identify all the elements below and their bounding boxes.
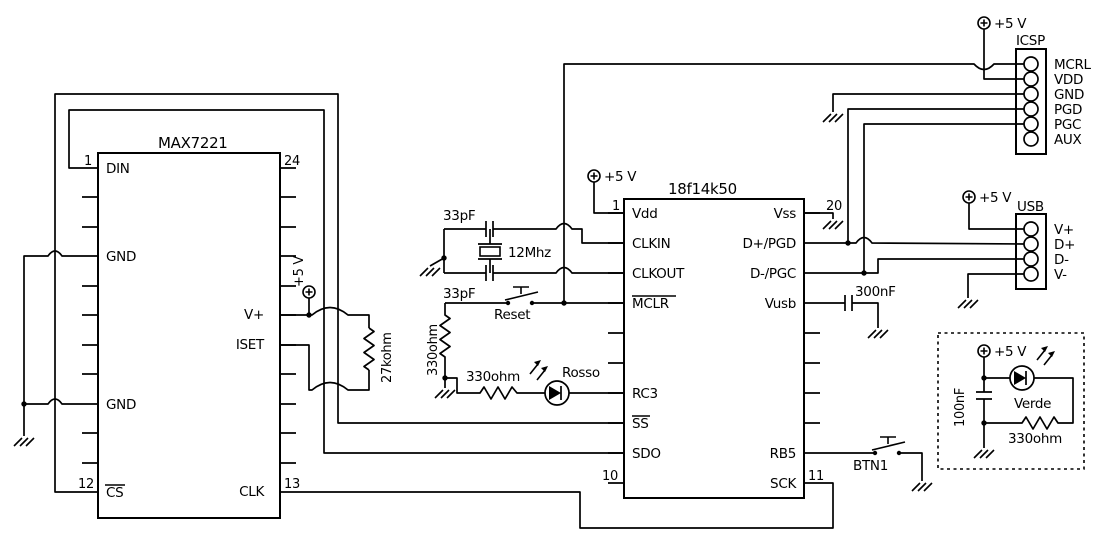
max-ground-icon	[14, 438, 34, 446]
icsp-pin-gnd: GND	[1054, 87, 1084, 103]
pic-pin-ss: SS	[632, 416, 649, 432]
schematic-canvas: MAX7221 1 24 12 13 DIN GND GND CS V+ ISE…	[0, 0, 1115, 546]
pic-5v-icon	[588, 170, 600, 182]
vusb-ground-icon	[868, 330, 888, 338]
usb-pin-vminus: V-	[1054, 267, 1067, 283]
vss-ground-icon	[823, 221, 843, 229]
pic-5v-label: +5 V	[604, 169, 637, 185]
pic-pin-vusb: Vusb	[765, 296, 796, 312]
pic-pin-sck: SCK	[770, 476, 797, 492]
verde-led-arrowhead-2	[1041, 346, 1048, 352]
max7221-chip: MAX7221 1 24 12 13 DIN GND GND CS V+ ISE…	[78, 134, 300, 518]
cap-top-wire	[444, 221, 624, 243]
icsp-5v-icon	[978, 17, 990, 29]
crystal-leads	[478, 229, 502, 273]
cap-top-label: 33pF	[443, 208, 475, 224]
mclr-resistor-ground-icon	[435, 390, 455, 398]
usb-pin-vplus: V+	[1054, 222, 1074, 238]
verde-led-arrowhead-1	[1048, 351, 1055, 357]
max7221-pin-gnd-lower: GND	[106, 397, 136, 413]
pic-pin-dpgc: D-/PGC	[750, 266, 796, 282]
icsp-connector: ICSP MCRL VDD GND PGD PGC AUX	[823, 29, 1092, 273]
usb-ground-icon	[958, 300, 978, 308]
vusb-capacitor-label: 300nF	[855, 284, 896, 300]
crystal-label: 12Mhz	[508, 245, 551, 261]
wire-gnd-lower	[24, 399, 82, 404]
schematic-page: MAX7221 1 24 12 13 DIN GND GND CS V+ ISE…	[0, 0, 1115, 546]
reset-label: Reset	[494, 307, 530, 323]
max7221-left-pin-stubs	[82, 168, 98, 492]
verde-cap-wires	[976, 357, 1010, 448]
rosso-led-label: Rosso	[562, 365, 600, 381]
pic-pin-clkin: CLKIN	[632, 236, 670, 252]
reset-button-symbol	[505, 287, 538, 300]
max7221-pin-iset: ISET	[236, 337, 265, 353]
cap-bottom-wire	[444, 265, 624, 281]
wire-dminus-pgc	[820, 259, 1024, 273]
btn1-ground-icon	[912, 483, 932, 491]
verde-led-label: Verde	[1014, 396, 1051, 412]
pic-pin-vss: Vss	[774, 206, 797, 222]
pic-pin10-number: 10	[602, 469, 618, 484]
icsp-pin-pgc: PGC	[1054, 117, 1081, 133]
icsp-title: ICSP	[1016, 33, 1045, 49]
iset-resistor-label: 27kohm	[380, 332, 395, 383]
wire-din-sdo	[69, 110, 624, 453]
usb-5v-icon	[963, 191, 975, 203]
pic-left-pin-stubs	[608, 213, 624, 483]
max-5v-label: +5 V	[292, 256, 307, 287]
usb-connector: USB V+ D+ D- V-	[958, 199, 1075, 308]
icsp-5v-label: +5 V	[994, 16, 1027, 32]
max7221-pin-gnd-upper: GND	[106, 249, 136, 265]
verde-resistor-label: 330ohm	[1008, 431, 1062, 447]
max7221-pin24-number: 24	[284, 154, 300, 169]
power-flags: +5 V +5 V +5 V +5 V	[292, 16, 1027, 298]
btn1-button-symbol	[872, 437, 905, 450]
pic-pin20-number: 20	[826, 199, 842, 214]
max7221-right-pin-stubs	[280, 168, 296, 492]
icsp-pgd-wire	[848, 109, 1024, 243]
max7221-title: MAX7221	[158, 134, 228, 152]
verde-led-circuit: +5 V Verde 330ohm 100nF	[938, 333, 1084, 469]
max7221-pin-din: DIN	[106, 161, 130, 177]
pic-pin1-number: 1	[612, 199, 620, 214]
cap-bottom-label: 33pF	[443, 286, 475, 302]
verde-5v-label: +5 V	[994, 344, 1027, 360]
pic-pin-dpgd: D+/PGD	[743, 236, 796, 252]
usb-title: USB	[1017, 199, 1044, 215]
rosso-led-triangle	[549, 386, 561, 400]
wire-clk-sck	[296, 483, 833, 528]
rosso-resistor-label: 330ohm	[466, 369, 520, 385]
wire-gnd-upper	[24, 251, 82, 436]
rosso-led-cathode-wire	[561, 386, 624, 400]
verde-ground-icon	[974, 450, 994, 458]
crystal-body	[480, 247, 500, 256]
btn1-circuit: BTN1	[820, 437, 932, 491]
iset-resistor-zigzag	[364, 328, 374, 370]
vusb-capacitor-circuit: 300nF	[820, 284, 896, 338]
rosso-led-circuit: 330ohm Rosso	[445, 360, 624, 405]
pic-pin-vdd: Vdd	[632, 206, 657, 222]
usb-pin-dplus: D+	[1054, 237, 1075, 253]
pic18f14k50-chip: 18f14k50 1 20 10 11 Vdd CLKIN CLKOUT MCL…	[602, 180, 842, 498]
max7221-pin-cs: CS	[106, 485, 123, 501]
rosso-led-arrowhead-1	[541, 366, 548, 372]
crystal-ground-icon	[420, 268, 440, 276]
icsp-pin-aux: AUX	[1054, 132, 1082, 148]
max7221-pin-vplus: V+	[244, 307, 264, 323]
icsp-pin-vdd: VDD	[1054, 72, 1083, 88]
pic-pin11-number: 11	[808, 469, 824, 484]
mclr-resistor-label: 330ohm	[426, 324, 441, 376]
btn1-label: BTN1	[853, 458, 888, 474]
pic-title: 18f14k50	[668, 180, 737, 198]
verde-led-arrows	[1037, 350, 1052, 365]
pic-pin-clkout: CLKOUT	[632, 266, 685, 282]
max7221-pin1-number: 1	[84, 154, 92, 169]
verde-led-triangle	[1014, 371, 1026, 385]
usb-5v-label: +5 V	[979, 190, 1012, 206]
crystal-circuit: 33pF 33pF 12Mhz	[420, 208, 624, 302]
pic-pin-mclr: MCLR	[632, 296, 669, 312]
icsp-pin-mcrl: MCRL	[1054, 57, 1092, 73]
mclr-resistor	[440, 303, 450, 388]
crystal-left-bus	[430, 229, 444, 273]
usb-pin-dminus: D-	[1054, 252, 1069, 268]
btn1-button[interactable]	[872, 437, 905, 455]
reset-button[interactable]	[505, 287, 538, 305]
rosso-led-arrowhead-2	[534, 360, 541, 366]
verde-capacitor-label: 100nF	[953, 388, 968, 427]
rosso-led-arrows	[530, 364, 545, 380]
max7221-pin12-number: 12	[78, 477, 94, 492]
max7221-pin13-number: 13	[284, 477, 300, 492]
max7221-pin-clk: CLK	[239, 484, 265, 500]
pic-pin-rc3: RC3	[632, 386, 658, 402]
icsp-pin-pgd: PGD	[1054, 102, 1082, 118]
pic-pin-sdo: SDO	[632, 446, 661, 462]
verde-5v-icon	[978, 345, 990, 357]
pic-pin-rb5: RB5	[770, 446, 796, 462]
pic-right-pin-stubs	[804, 213, 820, 483]
icsp-ground-icon	[823, 114, 843, 122]
